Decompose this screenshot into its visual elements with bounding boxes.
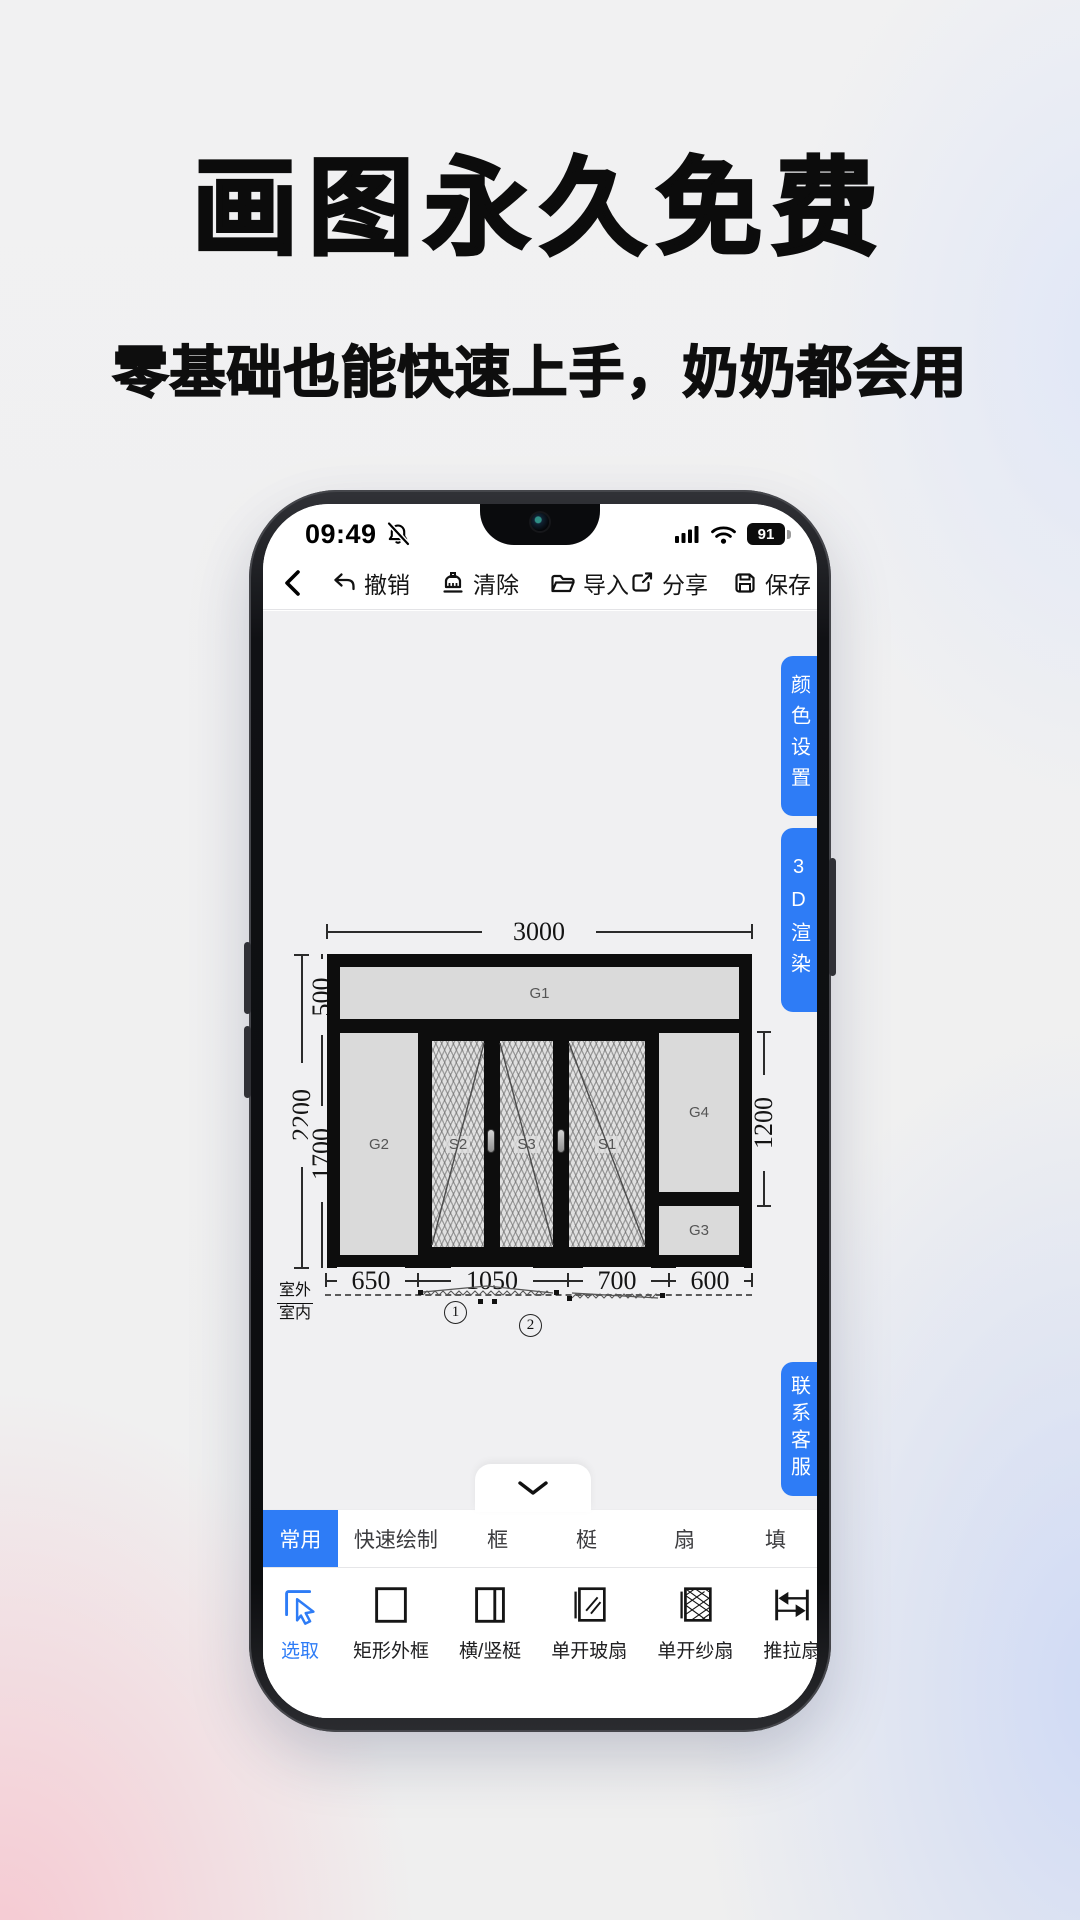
tick bbox=[294, 954, 309, 956]
dim-bottom-4[interactable]: 600 bbox=[676, 1267, 744, 1295]
front-camera bbox=[531, 513, 549, 531]
tool-label: 单开玻扇 bbox=[551, 1636, 627, 1663]
tool-select[interactable]: 选取 bbox=[277, 1582, 323, 1663]
node-square bbox=[478, 1299, 483, 1304]
glass-sash-icon bbox=[566, 1582, 612, 1628]
rect-frame-icon bbox=[368, 1582, 414, 1628]
panel-G2[interactable]: G2 bbox=[340, 1033, 418, 1255]
panel-label: G1 bbox=[529, 985, 549, 1002]
inside-label: 室内 bbox=[277, 1304, 313, 1325]
share-label: 分享 bbox=[662, 566, 708, 600]
tick bbox=[757, 1031, 771, 1033]
undo-label: 撤销 bbox=[364, 566, 410, 600]
sash-handle bbox=[557, 1129, 565, 1153]
share-button[interactable]: 分享 bbox=[629, 566, 708, 600]
bell-muted-icon bbox=[385, 521, 411, 547]
node-square bbox=[567, 1296, 572, 1301]
window-frame[interactable]: G1 G2 S2 S3 S1 G4 G3 bbox=[327, 954, 752, 1268]
save-label: 保存 bbox=[765, 566, 811, 600]
save-button[interactable]: 保存 bbox=[732, 566, 811, 600]
track-zigzag-2 bbox=[570, 1290, 662, 1306]
cursor-select-icon bbox=[277, 1582, 323, 1628]
tick bbox=[751, 1273, 753, 1287]
dim-total-width[interactable]: 3000 bbox=[482, 918, 596, 946]
collapse-panel-button[interactable] bbox=[475, 1464, 591, 1512]
tab-mullion[interactable]: 梃 bbox=[545, 1510, 628, 1567]
tick bbox=[567, 1273, 569, 1287]
circled-marker-1[interactable]: 1 bbox=[444, 1301, 467, 1324]
notch bbox=[480, 504, 600, 545]
tool-mesh-sash[interactable]: 单开纱扇 bbox=[657, 1582, 733, 1663]
battery-nub bbox=[787, 530, 791, 539]
battery-icon: 91 bbox=[747, 523, 785, 545]
render-3d-button[interactable]: 3D渲染 bbox=[781, 828, 817, 1012]
panel-S1[interactable]: S1 bbox=[569, 1041, 645, 1247]
import-label: 导入 bbox=[583, 566, 629, 600]
dim-right-height[interactable]: 1200 bbox=[750, 1075, 778, 1171]
tick bbox=[757, 1205, 771, 1207]
folder-icon bbox=[549, 570, 576, 596]
tool-rect-frame[interactable]: 矩形外框 bbox=[353, 1582, 429, 1663]
tool-strip: 选取 矩形外框 横/竖梃 bbox=[263, 1568, 817, 1663]
volume-up-button bbox=[244, 942, 251, 1014]
context-labels: 室外 室内 bbox=[277, 1281, 313, 1325]
contact-support-button[interactable]: 联系客服 bbox=[781, 1362, 817, 1496]
circled-marker-2[interactable]: 2 bbox=[519, 1314, 542, 1337]
tool-label: 矩形外框 bbox=[353, 1636, 429, 1663]
tab-quick-draw[interactable]: 快速绘制 bbox=[352, 1510, 440, 1567]
tick bbox=[668, 1273, 670, 1287]
color-settings-button[interactable]: 颜色设置 bbox=[781, 656, 817, 816]
hero-title: 画图永久免费 bbox=[0, 122, 1080, 276]
wifi-icon bbox=[710, 524, 737, 545]
panel-label: G4 bbox=[689, 1104, 709, 1121]
chevron-down-icon bbox=[516, 1480, 550, 1496]
tick bbox=[417, 1273, 419, 1287]
node-square bbox=[492, 1299, 497, 1304]
save-floppy-icon bbox=[732, 570, 758, 596]
mullion-icon bbox=[467, 1582, 513, 1628]
clock: 09:49 bbox=[305, 519, 377, 550]
tab-sash[interactable]: 扇 bbox=[643, 1510, 726, 1567]
tab-common[interactable]: 常用 bbox=[263, 1510, 338, 1567]
outside-label: 室外 bbox=[277, 1281, 313, 1304]
power-button bbox=[829, 858, 836, 976]
node-square bbox=[418, 1290, 423, 1295]
tool-label: 推拉扇 bbox=[763, 1636, 817, 1663]
hero-subtitle: 零基础也能快速上手，奶奶都会用 bbox=[0, 328, 1080, 409]
panel-label: G3 bbox=[689, 1222, 709, 1239]
signal-icon bbox=[674, 524, 700, 544]
volume-down-button bbox=[244, 1026, 251, 1098]
tool-panel: 常用 快速绘制 框 梃 扇 填 选取 bbox=[263, 1509, 817, 1718]
undo-button[interactable]: 撤销 bbox=[331, 566, 410, 600]
panel-S2[interactable]: S2 bbox=[432, 1041, 484, 1247]
phone-frame: 09:49 91 bbox=[249, 490, 831, 1732]
sliding-sash-icon bbox=[769, 1582, 815, 1628]
undo-icon bbox=[331, 570, 357, 596]
tool-label: 横/竖梃 bbox=[459, 1636, 521, 1663]
tool-label: 单开纱扇 bbox=[657, 1636, 733, 1663]
clear-label: 清除 bbox=[473, 566, 519, 600]
back-button[interactable] bbox=[279, 568, 307, 598]
track-zigzag-1 bbox=[421, 1284, 557, 1302]
dim-bottom-1[interactable]: 650 bbox=[337, 1267, 405, 1295]
category-tabbar: 常用 快速绘制 框 梃 扇 填 bbox=[263, 1509, 817, 1568]
panel-label: G2 bbox=[369, 1136, 389, 1153]
import-button[interactable]: 导入 bbox=[549, 566, 629, 600]
panel-G1[interactable]: G1 bbox=[340, 967, 739, 1019]
tool-sliding-sash[interactable]: 推拉扇 bbox=[763, 1582, 817, 1663]
share-icon bbox=[629, 570, 655, 596]
tick bbox=[325, 1273, 327, 1287]
tab-fill[interactable]: 填 bbox=[734, 1510, 817, 1567]
panel-S3[interactable]: S3 bbox=[500, 1041, 553, 1247]
tool-glass-sash[interactable]: 单开玻扇 bbox=[551, 1582, 627, 1663]
tool-label: 选取 bbox=[281, 1636, 319, 1663]
tool-mullion[interactable]: 横/竖梃 bbox=[459, 1582, 521, 1663]
clear-dustpan-icon bbox=[440, 570, 466, 596]
sash-handle bbox=[487, 1129, 495, 1153]
clear-button[interactable]: 清除 bbox=[440, 566, 519, 600]
page: 画图永久免费 零基础也能快速上手，奶奶都会用 09:49 bbox=[0, 0, 1080, 1920]
tab-frame[interactable]: 框 bbox=[456, 1510, 539, 1567]
tick bbox=[751, 924, 753, 939]
tick bbox=[326, 924, 328, 939]
tick bbox=[294, 1267, 309, 1269]
node-square bbox=[660, 1293, 665, 1298]
app-toolbar: 撤销 清除 导入 分享 保存 bbox=[263, 556, 817, 610]
mesh-sash-icon bbox=[672, 1582, 718, 1628]
panel-G4[interactable]: G4 bbox=[659, 1033, 739, 1192]
phone-screen: 09:49 91 bbox=[263, 504, 817, 1718]
panel-G3[interactable]: G3 bbox=[659, 1206, 739, 1255]
node-square bbox=[554, 1290, 559, 1295]
